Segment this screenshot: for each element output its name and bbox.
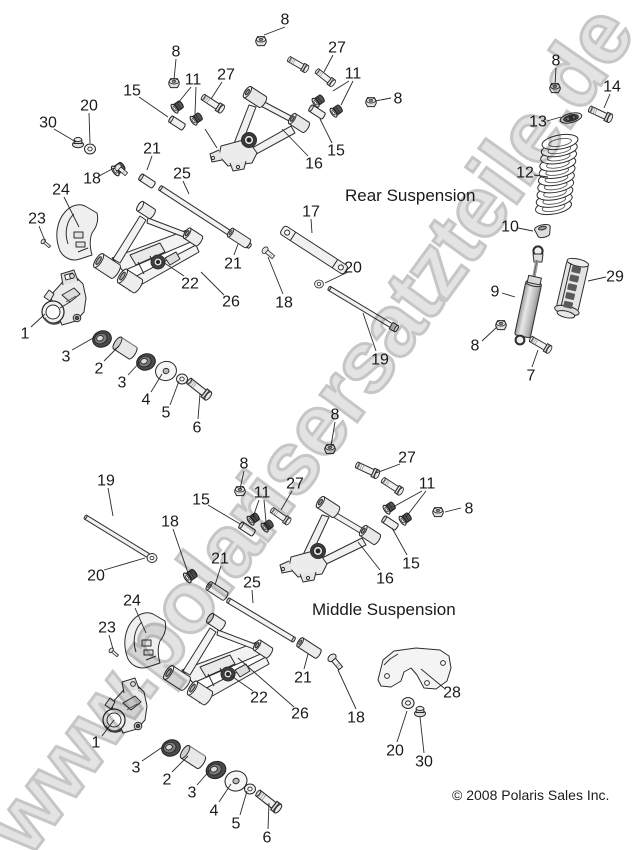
svg-text:4: 4 <box>210 803 219 820</box>
svg-text:28: 28 <box>443 685 461 702</box>
svg-text:8: 8 <box>465 501 474 518</box>
svg-text:21: 21 <box>294 670 312 687</box>
svg-text:26: 26 <box>222 294 240 311</box>
svg-text:18: 18 <box>161 514 179 531</box>
svg-text:27: 27 <box>398 450 416 467</box>
svg-text:2: 2 <box>95 361 104 378</box>
svg-text:11: 11 <box>419 476 436 493</box>
svg-text:16: 16 <box>305 156 323 173</box>
svg-text:18: 18 <box>275 295 293 312</box>
svg-text:8: 8 <box>172 44 181 61</box>
svg-text:18: 18 <box>83 171 101 188</box>
svg-text:Middle Suspension: Middle Suspension <box>312 600 456 619</box>
svg-text:22: 22 <box>181 276 199 293</box>
svg-text:1: 1 <box>21 326 30 343</box>
svg-text:27: 27 <box>328 40 346 57</box>
svg-text:20: 20 <box>80 98 98 115</box>
svg-text:30: 30 <box>39 115 57 132</box>
svg-text:4: 4 <box>142 392 151 409</box>
svg-text:19: 19 <box>97 473 115 490</box>
svg-text:3: 3 <box>62 349 71 366</box>
svg-text:7: 7 <box>527 368 536 385</box>
svg-text:26: 26 <box>291 706 309 723</box>
svg-text:21: 21 <box>224 256 242 273</box>
svg-text:6: 6 <box>263 830 272 847</box>
svg-text:20: 20 <box>344 260 362 277</box>
svg-text:25: 25 <box>173 166 191 183</box>
svg-text:22: 22 <box>250 690 268 707</box>
svg-text:29: 29 <box>606 269 624 286</box>
svg-text:5: 5 <box>232 816 241 833</box>
svg-text:23: 23 <box>28 211 46 228</box>
svg-text:27: 27 <box>217 67 235 84</box>
svg-text:3: 3 <box>132 760 141 777</box>
svg-text:8: 8 <box>281 12 290 29</box>
svg-text:17: 17 <box>302 204 320 221</box>
svg-text:2: 2 <box>163 772 172 789</box>
svg-text:15: 15 <box>123 83 141 100</box>
svg-text:11: 11 <box>185 72 202 89</box>
svg-text:21: 21 <box>143 141 161 158</box>
svg-text:3: 3 <box>118 375 127 392</box>
svg-text:8: 8 <box>394 91 403 108</box>
svg-text:11: 11 <box>345 66 362 83</box>
svg-text:6: 6 <box>193 420 202 437</box>
svg-text:3: 3 <box>188 785 197 802</box>
svg-text:8: 8 <box>471 338 480 355</box>
svg-text:18: 18 <box>347 710 365 727</box>
svg-text:15: 15 <box>402 556 420 573</box>
svg-text:5: 5 <box>162 405 171 422</box>
svg-text:24: 24 <box>52 182 70 199</box>
svg-text:© 2008 Polaris Sales Inc.: © 2008 Polaris Sales Inc. <box>452 787 609 803</box>
svg-text:20: 20 <box>386 743 404 760</box>
svg-text:9: 9 <box>491 284 500 301</box>
svg-text:20: 20 <box>87 568 105 585</box>
svg-text:16: 16 <box>376 571 394 588</box>
svg-text:30: 30 <box>415 754 433 771</box>
svg-text:15: 15 <box>327 143 345 160</box>
